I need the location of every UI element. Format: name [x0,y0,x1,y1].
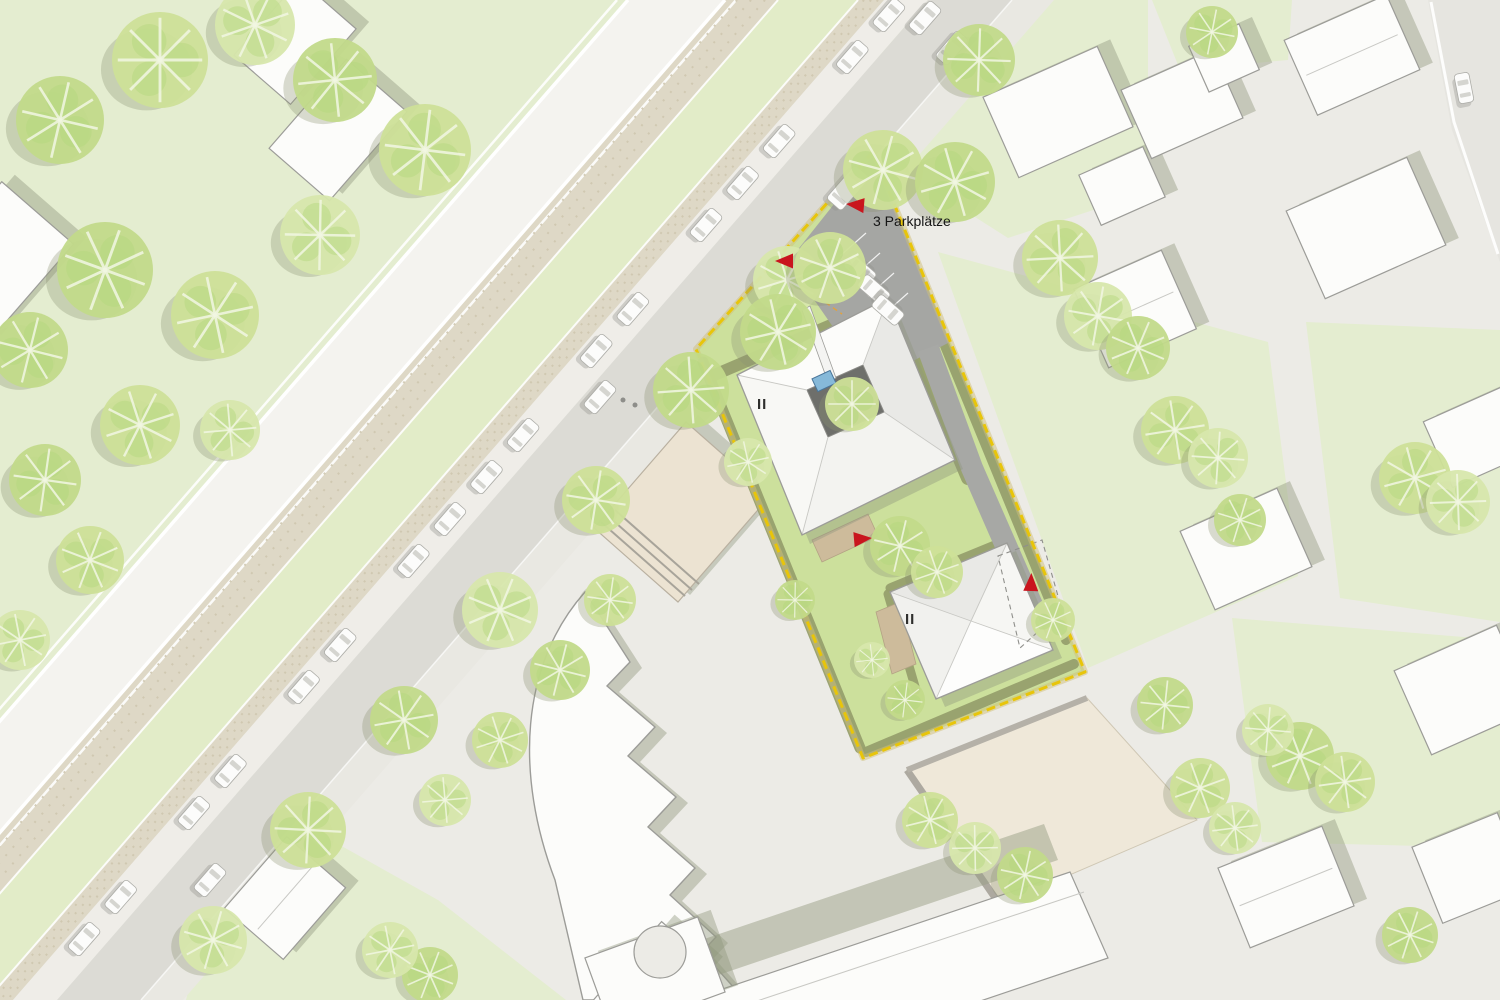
tree-foliage-blob [854,391,873,410]
tree-branch [947,59,979,60]
site-plan-svg: 3 Parkplätze II II [0,0,1500,1000]
tree-branch [979,28,980,60]
tree-foliage-blob [955,834,974,853]
tree-foliage-blob [232,422,254,444]
tree-branch [1430,502,1458,503]
pedestrian-dot [621,398,626,403]
building2-floor-label: II [905,611,915,628]
tree-foliage-blob [784,585,798,599]
tree-branch [320,200,321,235]
tree-branch [285,234,320,235]
building-notch [634,926,686,978]
tree-branch [1458,501,1486,502]
tree-foliage-blob [111,401,140,430]
tree-branch [319,235,320,270]
pedestrian-dot [633,403,638,408]
parking-count-label: 3 Parkplätze [873,213,951,229]
tree-foliage-blob [839,406,858,425]
tree-branch [979,60,1011,61]
tree-branch [1458,502,1459,530]
tree-branch [978,60,979,92]
site-plan: 3 Parkplätze II II [0,0,1500,1000]
generated-map-layers [0,0,1500,1000]
tree-branch [1457,474,1458,502]
building1-floor-label: II [757,396,767,413]
tree-branch [320,235,355,236]
tree-foliage-blob [215,407,237,429]
